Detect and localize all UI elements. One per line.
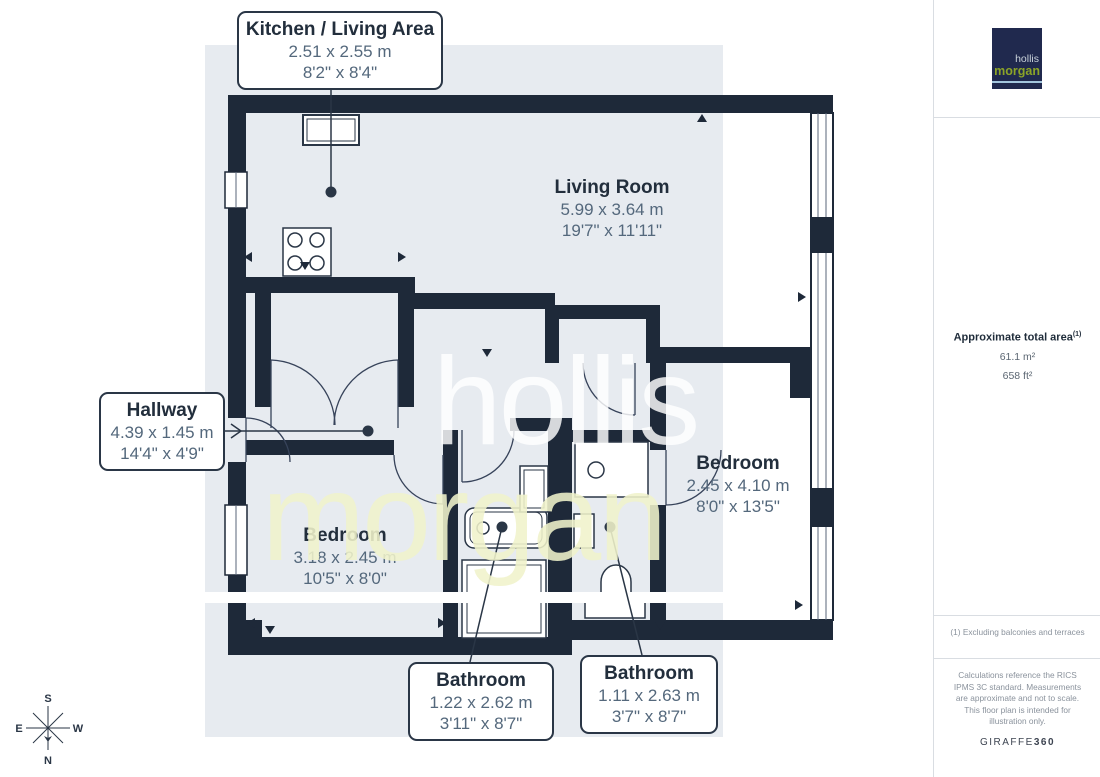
area-title-text: Approximate total area xyxy=(954,332,1073,344)
room-dim-imperial: 14'4" x 4'9" xyxy=(107,443,217,464)
room-name: Kitchen / Living Area xyxy=(245,18,435,41)
compass-label-bottom: N xyxy=(44,755,52,767)
compass-label-top: S xyxy=(44,693,51,705)
room-dim-imperial: 10'5" x 8'0" xyxy=(247,568,443,589)
giraffe360-bold: 360 xyxy=(1034,737,1055,748)
hollis-morgan-logo: hollis morgan xyxy=(992,28,1042,89)
logo-text-morgan: morgan xyxy=(994,65,1042,78)
room-dim-metric: 1.11 x 2.63 m xyxy=(588,685,710,706)
room-label-kitchen-living: Kitchen / Living Area 2.51 x 2.55 m 8'2"… xyxy=(237,11,443,90)
room-name: Bedroom xyxy=(648,452,828,475)
area-summary: Approximate total area(1) 61.1 m² 658 ft… xyxy=(934,331,1100,382)
divider xyxy=(934,117,1100,118)
room-dim-imperial: 3'7" x 8'7" xyxy=(588,706,710,727)
compass: S N E W xyxy=(14,692,86,770)
sink-1 xyxy=(520,466,548,512)
area-title: Approximate total area(1) xyxy=(934,331,1100,344)
room-label-bathroom-2: Bathroom 1.11 x 2.63 m 3'7" x 8'7" xyxy=(580,655,718,734)
room-dim-metric: 1.22 x 2.62 m xyxy=(416,692,546,713)
room-dim-metric: 5.99 x 3.64 m xyxy=(500,199,724,220)
room-dim-imperial: 19'7" x 11'11" xyxy=(500,220,724,241)
logo-underline xyxy=(992,81,1042,83)
room-name: Living Room xyxy=(500,176,724,199)
room-label-hallway: Hallway 4.39 x 1.45 m 14'4" x 4'9" xyxy=(99,392,225,471)
room-name: Bathroom xyxy=(416,669,546,692)
room-label-bedroom-large: Bedroom 2.45 x 4.10 m 8'0" x 13'5" xyxy=(648,452,828,517)
room-dim-metric: 3.18 x 2.45 m xyxy=(247,547,443,568)
area-value-metric: 61.1 m² xyxy=(934,351,1100,363)
giraffe360-brand: GIRAFFE360 xyxy=(934,737,1100,748)
area-footnote: (1) Excluding balconies and terraces xyxy=(934,627,1100,637)
area-footnote-marker: (1) xyxy=(1073,331,1082,338)
room-dim-metric: 2.51 x 2.55 m xyxy=(245,41,435,62)
room-dim-imperial: 8'2" x 8'4" xyxy=(245,62,435,83)
info-sidebar: hollis morgan Approximate total area(1) … xyxy=(933,0,1100,777)
giraffe360-regular: GIRAFFE xyxy=(980,737,1034,748)
stove xyxy=(283,228,331,276)
floorplan-canvas: Kitchen / Living Area 2.51 x 2.55 m 8'2"… xyxy=(0,0,1100,777)
compass-label-right: W xyxy=(73,723,84,735)
compass-label-left: E xyxy=(15,723,22,735)
divider xyxy=(934,615,1100,616)
room-label-living-room: Living Room 5.99 x 3.64 m 19'7" x 11'11" xyxy=(500,176,724,241)
room-name: Hallway xyxy=(107,399,217,422)
room-label-bathroom-1: Bathroom 1.22 x 2.62 m 3'11" x 8'7" xyxy=(408,662,554,741)
shower-tray-2 xyxy=(575,442,648,497)
area-value-imperial: 658 ft² xyxy=(934,370,1100,382)
room-name: Bedroom xyxy=(247,524,443,547)
sink-2 xyxy=(574,514,594,548)
disclaimer-text: Calculations reference the RICS IPMS 3C … xyxy=(934,670,1100,728)
room-dim-metric: 4.39 x 1.45 m xyxy=(107,422,217,443)
room-name: Bathroom xyxy=(588,662,710,685)
room-dim-imperial: 3'11" x 8'7" xyxy=(416,713,546,734)
room-label-bedroom-small: Bedroom 3.18 x 2.45 m 10'5" x 8'0" xyxy=(247,524,443,589)
room-dim-metric: 2.45 x 4.10 m xyxy=(648,475,828,496)
room-dim-imperial: 8'0" x 13'5" xyxy=(648,496,828,517)
divider xyxy=(934,658,1100,659)
plot-gap xyxy=(205,592,723,603)
